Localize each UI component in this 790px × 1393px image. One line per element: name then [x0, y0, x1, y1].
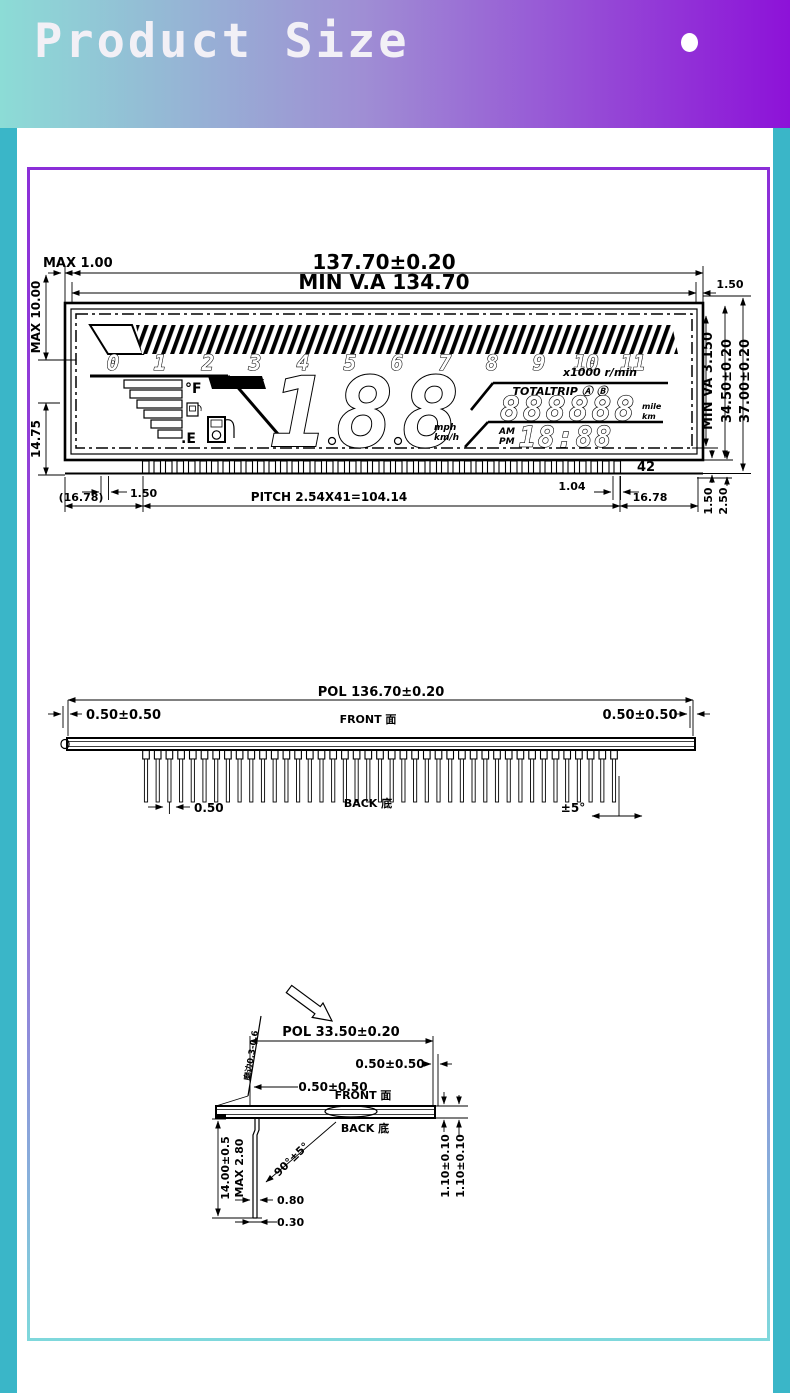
- pin-leg: [414, 759, 417, 802]
- pin-base: [353, 751, 360, 760]
- pin-leg: [460, 759, 463, 802]
- pin-base: [342, 751, 349, 760]
- pin-pad: [373, 461, 380, 473]
- pin-leg: [215, 759, 218, 802]
- pin-pad: [143, 461, 150, 473]
- dim-glass-height: 34.50±0.20: [720, 339, 735, 423]
- pin-base: [248, 751, 255, 760]
- pin-pad: [235, 461, 242, 473]
- dim-va-width: MIN V.A 134.70: [298, 270, 469, 294]
- pin-pad: [223, 461, 230, 473]
- pin-pad: [246, 461, 253, 473]
- pin-base: [388, 751, 395, 760]
- pin-pad: [580, 461, 587, 473]
- pin-leg: [203, 759, 206, 802]
- dim-pin-left: (16.78): [59, 491, 104, 504]
- pin-count-label: 42: [637, 460, 655, 475]
- tach-num-3: 3: [248, 351, 262, 375]
- pin-base: [482, 751, 489, 760]
- pin-pad: [522, 461, 529, 473]
- pin-leg: [273, 759, 276, 802]
- pin-leg: [156, 759, 159, 802]
- dim-total-height: 37.00±0.20: [738, 339, 753, 423]
- pin-pad: [304, 461, 311, 473]
- tach-zero-wedge: [90, 325, 143, 354]
- fuel-empty-label: .E: [181, 431, 196, 447]
- pin-leg: [425, 759, 428, 802]
- pin-base: [576, 751, 583, 760]
- pin-base: [330, 751, 337, 760]
- pin-leg: [472, 759, 475, 802]
- pin-base: [283, 751, 290, 760]
- bullet-dot-icon: [681, 33, 698, 52]
- header-banner: Product Size: [0, 0, 790, 128]
- dim-bend-angle: 90°±5°: [272, 1140, 312, 1179]
- pin-pad: [591, 461, 598, 473]
- pin-leg: [577, 759, 580, 802]
- tach-num-1: 1: [154, 351, 167, 375]
- dim-pol-length: POL 33.50±0.20: [282, 1025, 399, 1040]
- edge-note: 磨边0.3-0.6: [242, 1030, 261, 1083]
- dim-left-upper: MAX 10.00: [30, 281, 43, 354]
- pin-leg: [390, 759, 393, 802]
- pin-leg: [355, 759, 358, 802]
- bent-pin: [253, 1119, 259, 1218]
- dim-left-lower: 14.75: [30, 420, 43, 458]
- pin-pad: [476, 461, 483, 473]
- pin-base: [494, 751, 501, 760]
- dim-pin-width: 0.50: [194, 801, 224, 815]
- pin-leg: [495, 759, 498, 802]
- am-label: AM: [498, 427, 515, 437]
- polarizer-bump: [325, 1106, 377, 1117]
- pin-base: [318, 751, 325, 760]
- pin-leg: [531, 759, 534, 802]
- pin-base: [377, 751, 384, 760]
- pin-leg: [519, 759, 522, 802]
- pin-leg: [437, 759, 440, 802]
- pin-pad: [384, 461, 391, 473]
- pin-leg: [566, 759, 569, 802]
- pm-label: PM: [499, 437, 515, 447]
- dim-pin-h1: 1.50: [702, 487, 715, 514]
- pin-pad: [154, 461, 161, 473]
- pin-base: [154, 751, 161, 760]
- pin-base: [470, 751, 477, 760]
- pin-pad: [465, 461, 472, 473]
- front-view: 137.70±0.20 MIN V.A 134.70 MAX 1.00 MAX …: [30, 250, 753, 515]
- pin-pad: [166, 461, 173, 473]
- odo-unit-km: km: [642, 412, 656, 421]
- end-view: 磨边0.3-0.6 POL 33.50±0.20 0.50±0.50 0.50±…: [212, 985, 468, 1229]
- pin-pad: [614, 461, 621, 473]
- pin-base: [307, 751, 314, 760]
- dim-max-gap: MAX 1.00: [43, 256, 113, 271]
- pin-base: [213, 751, 220, 760]
- pin-pad: [361, 461, 368, 473]
- pin-leg: [449, 759, 452, 802]
- pin-pad: [603, 461, 610, 473]
- pin-pad: [499, 461, 506, 473]
- pin-pad: [430, 461, 437, 473]
- clock-display: 18:88: [519, 421, 613, 454]
- dim-left-offset: 0.50±0.50: [86, 708, 161, 723]
- dim-pin-right: 16.78: [633, 491, 668, 504]
- page: Product Size 137.70±0.20: [0, 0, 790, 1393]
- pin-pad: [350, 461, 357, 473]
- dim-height: 14.00±0.5: [219, 1136, 232, 1200]
- pin-pad: [545, 461, 552, 473]
- pin-base: [271, 751, 278, 760]
- pin-leg: [191, 759, 194, 802]
- pin-leg: [297, 759, 300, 802]
- tach-hatch-band: [136, 325, 678, 354]
- side-view: POL 136.70±0.20 0.50±0.50 0.50±0.50 FRON…: [48, 685, 710, 816]
- pin-base: [587, 751, 594, 760]
- pin-base: [201, 751, 208, 760]
- pin-pad: [269, 461, 276, 473]
- pin-leg: [612, 759, 615, 802]
- pin-pad: [177, 461, 184, 473]
- glass-bar: [61, 738, 695, 750]
- front-face-label: FRONT 面: [340, 713, 397, 726]
- left-edge-strip: [0, 128, 17, 1393]
- pin-base: [564, 751, 571, 760]
- tachometer-scale: [90, 325, 678, 354]
- dim-angle: ±5°: [561, 801, 585, 815]
- pin-pad: [338, 461, 345, 473]
- pin-base: [365, 751, 372, 760]
- pin-leg: [554, 759, 557, 802]
- pin-leg: [226, 759, 229, 802]
- odo-unit-mile: mile: [642, 402, 662, 411]
- back-face-label: BACK 底: [341, 1121, 389, 1135]
- page-title: Product Size: [34, 14, 410, 69]
- pin-leg: [507, 759, 510, 802]
- tach-num-0: 0: [107, 351, 120, 375]
- pin-base: [166, 751, 173, 760]
- pin-pad: [292, 461, 299, 473]
- tach-num-9: 9: [533, 351, 546, 375]
- dim-va-height: MIN VA 3.150: [701, 332, 716, 430]
- pin-base: [541, 751, 548, 760]
- pin-base: [447, 751, 454, 760]
- pin-pad: [442, 461, 449, 473]
- pin-base: [529, 751, 536, 760]
- pin-leg: [402, 759, 405, 802]
- pin-base: [236, 751, 243, 760]
- pin-pad: [258, 461, 265, 473]
- main-digits: 188: [270, 357, 467, 469]
- pin-leg: [589, 759, 592, 802]
- pin-base: [260, 751, 267, 760]
- speed-unit-mph: mph: [434, 423, 456, 433]
- tach-num-8: 8: [486, 351, 499, 375]
- pin-leg: [168, 759, 171, 802]
- speed-unit-kmh: km/h: [434, 433, 459, 443]
- pin-leg: [180, 759, 183, 802]
- fuel-full-label: °F: [185, 381, 202, 397]
- dim-right-offset: 0.50±0.50: [602, 708, 677, 723]
- pin-pad: [557, 461, 564, 473]
- dim-th1: 1.10±0.10: [439, 1134, 452, 1198]
- dim-right-top: 1.50: [716, 278, 743, 291]
- pin-base: [517, 751, 524, 760]
- pin-base: [505, 751, 512, 760]
- pin-leg: [542, 759, 545, 802]
- pin-pad: [534, 461, 541, 473]
- pin-base: [400, 751, 407, 760]
- drawing-frame: 137.70±0.20 MIN V.A 134.70 MAX 1.00 MAX …: [27, 167, 770, 1341]
- pin-base: [611, 751, 618, 760]
- pin-pad: [568, 461, 575, 473]
- fuel-pump-large-icon: [208, 417, 234, 442]
- pin-leg: [261, 759, 264, 802]
- dim-pin-h2: 2.50: [717, 487, 730, 514]
- odometer-clock-block: TOTALTRIP Ⓐ Ⓑ 888888 mile km mph km/h AM…: [434, 383, 668, 454]
- pin-pad: [327, 461, 334, 473]
- dim-pol-length: POL 136.70±0.20: [318, 685, 445, 700]
- glass-bar-end: [216, 1106, 435, 1118]
- pin-pad: [407, 461, 414, 473]
- pin-leg: [378, 759, 381, 802]
- pin-pad: [488, 461, 495, 473]
- pin-leg: [308, 759, 311, 802]
- pin-pad: [453, 461, 460, 473]
- pin-leg: [320, 759, 323, 802]
- pin-base: [599, 751, 606, 760]
- pin-base: [552, 751, 559, 760]
- dim-first-pin: 1.50: [130, 487, 157, 500]
- pin-leg: [285, 759, 288, 802]
- pin-leg: [250, 759, 253, 802]
- pin-pad: [511, 461, 518, 473]
- pin-leg: [332, 759, 335, 802]
- dim-pitch: PITCH 2.54X41=104.14: [251, 490, 407, 504]
- back-face-label: BACK 底: [344, 796, 392, 810]
- dim-pin-tip: 0.30: [277, 1216, 304, 1229]
- pin-leg: [601, 759, 604, 802]
- pin-pad: [189, 461, 196, 473]
- pin-leg: [343, 759, 346, 802]
- pin-pad: [281, 461, 288, 473]
- right-edge-strip: [773, 128, 790, 1393]
- pin-leg: [144, 759, 147, 802]
- dim-th2: 1.10±0.10: [454, 1134, 467, 1198]
- pin-base: [424, 751, 431, 760]
- oil-change-label: OIL CHANGE: [212, 378, 265, 387]
- pin-legs-side: [143, 751, 618, 803]
- pin-pad: [315, 461, 322, 473]
- pin-base: [435, 751, 442, 760]
- pin-pad: [396, 461, 403, 473]
- dim-max-thickness: MAX 2.80: [233, 1138, 246, 1197]
- pin-pad: [419, 461, 426, 473]
- pin-base: [295, 751, 302, 760]
- pin-base: [143, 751, 150, 760]
- pin-base: [412, 751, 419, 760]
- tach-num-2: 2: [201, 351, 215, 375]
- main-digit-display: 188: [270, 357, 467, 469]
- pin-base: [178, 751, 185, 760]
- dim-pin-w: 0.80: [277, 1194, 304, 1207]
- fuel-pump-small-icon: [187, 403, 201, 416]
- tach-unit-label: x1000 r/min: [562, 366, 637, 379]
- dim-right-offset: 0.50±0.50: [355, 1057, 424, 1071]
- front-face-label: FRONT 面: [335, 1089, 392, 1102]
- pin-base: [459, 751, 466, 760]
- dim-last-pin: 1.04: [558, 480, 585, 493]
- technical-drawing: 137.70±0.20 MIN V.A 134.70 MAX 1.00 MAX …: [30, 170, 767, 1338]
- direction-arrow-icon: [286, 985, 332, 1021]
- pin-pad: [212, 461, 219, 473]
- pin-leg: [367, 759, 370, 802]
- pin-leg: [484, 759, 487, 802]
- pin-leg: [238, 759, 241, 802]
- pin-base: [190, 751, 197, 760]
- pin-pad: [200, 461, 207, 473]
- pin-base: [225, 751, 232, 760]
